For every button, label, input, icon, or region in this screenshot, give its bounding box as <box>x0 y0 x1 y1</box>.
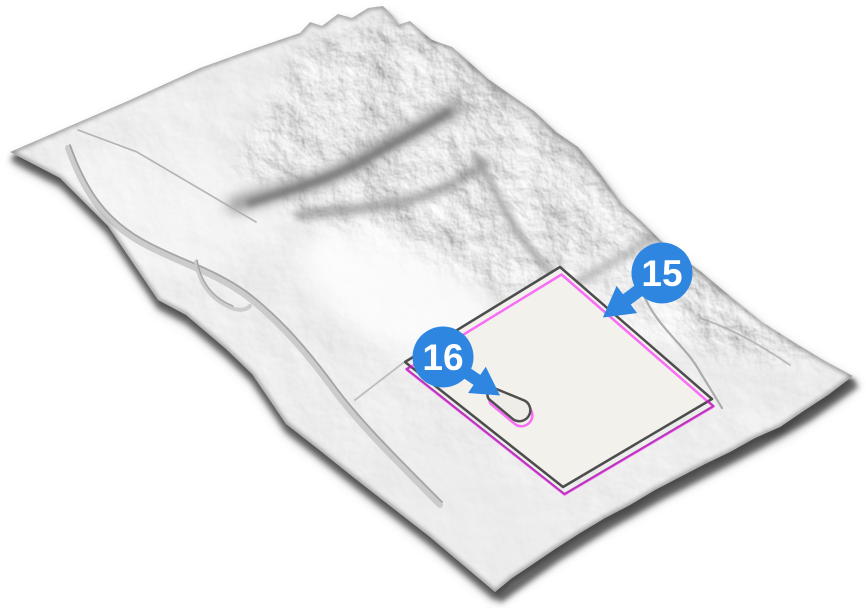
callout-16-label: 16 <box>422 337 463 378</box>
terrain-surface <box>0 0 866 608</box>
callout-15-label: 15 <box>641 253 682 294</box>
terrain-scene-stage: 15 16 <box>0 0 866 608</box>
terrain-3d-view[interactable]: 15 16 <box>0 0 866 608</box>
